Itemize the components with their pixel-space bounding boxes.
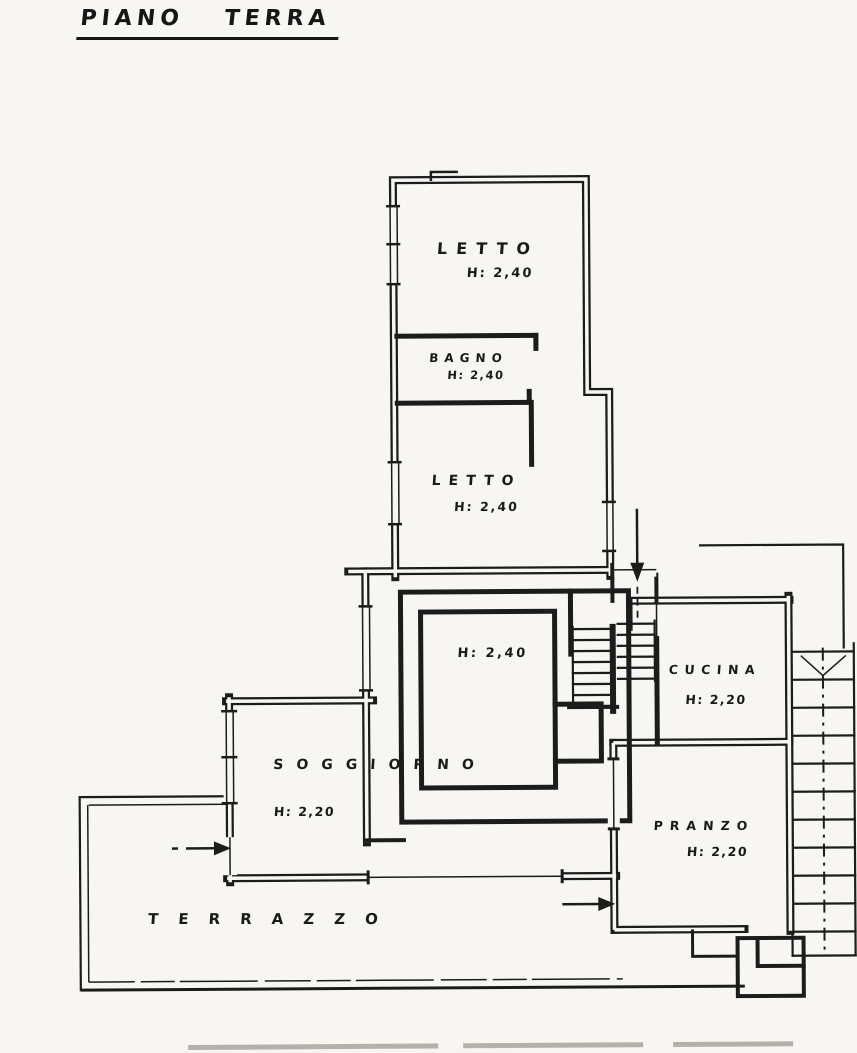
room-height-disimpegno: H: 2,40 — [430, 647, 556, 661]
room-label-letto-2: LETTO — [403, 474, 549, 489]
room-label-terrazzo: TERRAZZO — [97, 911, 448, 928]
room-height-letto-2: H: 2,40 — [424, 500, 550, 514]
room-label-pranzo: PRANZO — [628, 819, 781, 833]
room-label-cucina: CUCINA — [650, 663, 781, 677]
room-height-cucina: H: 2,20 — [660, 693, 773, 707]
entrance-arrow-west — [172, 841, 231, 855]
room-height-letto-1: H: 2,40 — [430, 267, 571, 281]
room-height-soggiorno: H: 2,20 — [252, 805, 358, 819]
room-height-pranzo: H: 2,20 — [655, 845, 781, 859]
entrance-arrow-south — [562, 897, 615, 911]
page-title: PIANO TERRA — [76, 6, 342, 40]
room-height-bagno: H: 2,40 — [416, 369, 537, 382]
floorplan-drawing — [0, 0, 857, 1053]
floorplan-sheet: PIANO TERRA LETTO H: 2,40 BAGNO H: 2,40 … — [0, 0, 857, 1050]
windows-and-openings — [218, 205, 658, 886]
room-label-bagno: BAGNO — [406, 352, 532, 365]
scan-artifact — [188, 1044, 813, 1048]
room-label-letto-1: LETTO — [407, 240, 568, 258]
external-staircase — [791, 643, 856, 955]
room-label-soggiorno: SOGGIORNO — [243, 758, 516, 773]
